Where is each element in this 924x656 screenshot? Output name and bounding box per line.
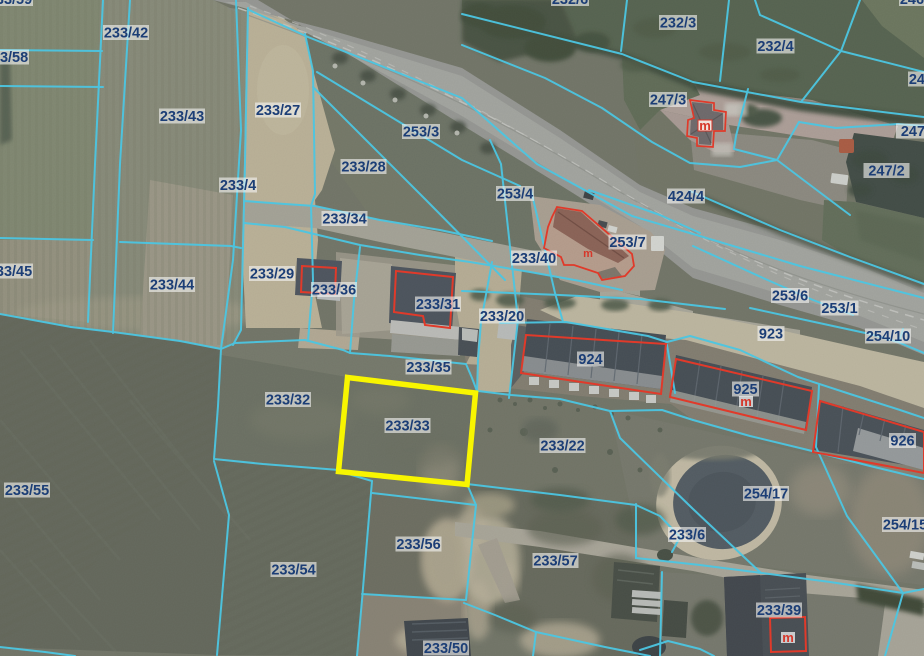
svg-text:253/1: 253/1 xyxy=(821,301,857,317)
svg-text:233/27: 233/27 xyxy=(256,103,300,119)
svg-text:424/4: 424/4 xyxy=(668,189,704,205)
svg-text:254/10: 254/10 xyxy=(866,329,910,345)
svg-text:233/20: 233/20 xyxy=(480,309,524,325)
svg-text:247/2: 247/2 xyxy=(901,124,924,140)
svg-text:m: m xyxy=(782,630,794,645)
svg-text:233/28: 233/28 xyxy=(341,160,385,176)
svg-text:233/6: 233/6 xyxy=(669,528,705,544)
svg-text:233/42: 233/42 xyxy=(104,26,148,42)
svg-text:253/3: 253/3 xyxy=(403,125,439,141)
svg-text:233/59: 233/59 xyxy=(0,0,32,8)
svg-text:246/2: 246/2 xyxy=(900,0,924,8)
svg-text:233/31: 233/31 xyxy=(416,297,460,313)
svg-text:233/44: 233/44 xyxy=(150,278,194,294)
svg-text:m: m xyxy=(699,118,711,133)
svg-text:233/4: 233/4 xyxy=(220,178,256,194)
svg-text:232/3: 232/3 xyxy=(660,16,696,32)
svg-text:233/55: 233/55 xyxy=(5,483,49,499)
svg-text:233/50: 233/50 xyxy=(424,641,468,656)
svg-text:253/6: 253/6 xyxy=(772,289,808,305)
svg-text:233/35: 233/35 xyxy=(406,360,450,376)
svg-text:233/34: 233/34 xyxy=(322,212,366,228)
svg-text:233/57: 233/57 xyxy=(533,554,577,570)
svg-text:924: 924 xyxy=(578,352,602,368)
svg-text:247/2: 247/2 xyxy=(868,164,904,180)
svg-text:254/17: 254/17 xyxy=(744,487,788,503)
svg-text:233/56: 233/56 xyxy=(396,537,440,553)
svg-text:m: m xyxy=(583,248,593,260)
svg-text:233/45: 233/45 xyxy=(0,264,32,280)
svg-text:923: 923 xyxy=(759,327,783,343)
svg-text:233/58: 233/58 xyxy=(0,50,28,66)
svg-text:232/6: 232/6 xyxy=(552,0,588,8)
svg-text:233/43: 233/43 xyxy=(160,109,204,125)
svg-text:246/5: 246/5 xyxy=(909,72,924,88)
svg-text:233/32: 233/32 xyxy=(266,393,310,409)
svg-text:926: 926 xyxy=(890,434,914,450)
svg-text:233/36: 233/36 xyxy=(312,283,356,299)
svg-text:233/29: 233/29 xyxy=(250,267,294,283)
svg-text:233/54: 233/54 xyxy=(271,563,315,579)
svg-text:233/33: 233/33 xyxy=(385,419,429,435)
svg-text:247/3: 247/3 xyxy=(650,93,686,109)
svg-text:233/40: 233/40 xyxy=(512,251,556,267)
svg-text:232/4: 232/4 xyxy=(757,39,793,55)
svg-text:233/22: 233/22 xyxy=(540,439,584,455)
svg-text:253/7: 253/7 xyxy=(609,235,645,251)
svg-text:m: m xyxy=(740,394,752,409)
svg-text:254/15: 254/15 xyxy=(883,518,924,534)
svg-text:253/4: 253/4 xyxy=(497,187,533,203)
svg-text:233/39: 233/39 xyxy=(757,603,801,619)
